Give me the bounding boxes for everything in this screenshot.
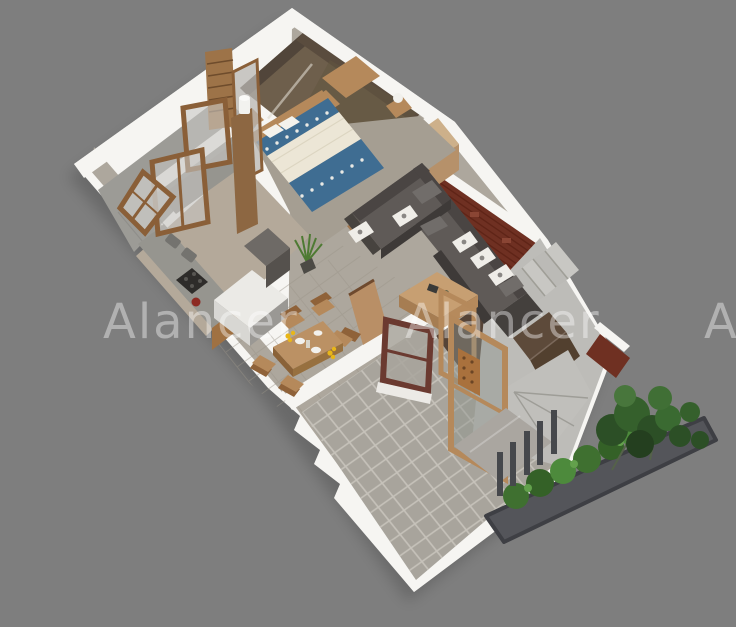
watermark-text: Alancer <box>103 294 299 350</box>
floor-plan-render: Alancer Alancer Alancer <box>0 0 736 627</box>
floor-plan-svg: Alancer Alancer Alancer <box>0 0 736 627</box>
watermark-text: Alancer <box>405 294 601 350</box>
lamp-right <box>393 93 403 103</box>
hamper-cylinder <box>239 95 250 114</box>
watermark-text-clipped: Alancer <box>704 294 736 350</box>
